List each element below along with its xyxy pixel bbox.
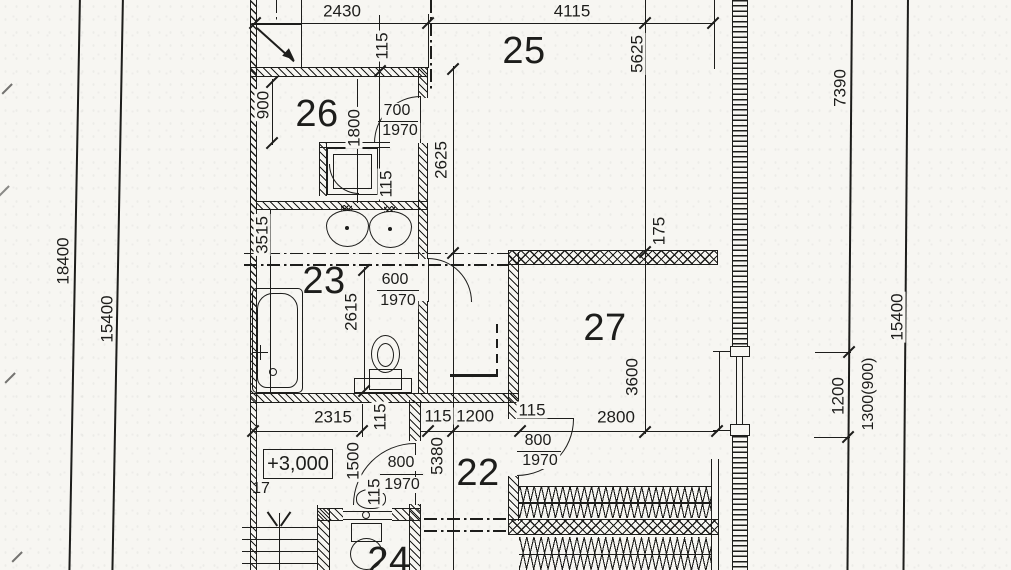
toilet-room23-bowl-inner	[377, 343, 394, 367]
wall-east-exterior-lower	[732, 436, 748, 570]
door-height-hall: 1970	[382, 477, 422, 493]
door-width-room26: 700	[382, 103, 413, 119]
dim-900: 900	[255, 89, 272, 121]
dim-chain-left	[253, 431, 358, 432]
floor-plan-sheet: 18400 15400 7390 15400 1200 1300(900) 24…	[0, 0, 1011, 570]
wall-hall-east-upper	[409, 400, 421, 441]
dim-1200-right: 1200	[830, 375, 847, 417]
stair-count: 17	[250, 481, 272, 497]
dim-4115: 4115	[552, 3, 593, 20]
dim-1300-900: 1300(900)	[861, 356, 877, 433]
dim-1500: 1500	[345, 440, 362, 482]
door-width-room27: 800	[523, 433, 554, 449]
room-label-22: 22	[454, 454, 501, 492]
edge-tick-4	[11, 551, 22, 562]
bathtub-drain	[269, 368, 277, 376]
door-height-room26: 1970	[380, 123, 420, 139]
dim-1800: 1800	[346, 107, 363, 149]
door-fraction-bar-room27	[517, 451, 561, 452]
dim-5625: 5625	[629, 33, 646, 75]
wall-room27-west-lower	[508, 476, 519, 521]
void-box-right-line	[301, 0, 302, 68]
shaft-mark-horizontal	[450, 374, 498, 377]
shaft-mark-vertical	[496, 324, 499, 374]
site-line-left-inner	[111, 0, 123, 570]
washbasin-1	[326, 210, 369, 247]
wardrobe-row1-rail	[519, 502, 712, 504]
dim-5380: 5380	[429, 435, 446, 477]
window-frame-top	[730, 346, 750, 357]
dim-2625: 2625	[433, 139, 450, 181]
door-width-hall: 800	[386, 455, 417, 471]
edge-tick-3	[4, 372, 15, 383]
dim-115-chain: 115	[422, 408, 453, 425]
dim-line-right-b	[902, 0, 908, 570]
dim-115-hall: 115	[366, 476, 383, 507]
washbasin-2	[369, 211, 412, 248]
washbasin-2-taps-icon	[384, 206, 395, 212]
wall-face-below-window-2	[718, 459, 719, 570]
dim-line-2625-5380	[453, 66, 454, 570]
dim-3515: 3515	[254, 214, 271, 256]
wall-east-exterior-upper	[732, 0, 748, 347]
wall-room27-west-upper	[508, 252, 519, 419]
axis-line-corridor-wall	[430, 0, 432, 92]
door-height-room23: 1970	[378, 293, 418, 309]
stair-arrow-head-left	[267, 511, 278, 526]
door-fraction-bar-room26	[378, 121, 418, 122]
dim-line-2615	[364, 267, 365, 393]
dim-2430: 2430	[321, 3, 363, 20]
axis-line-h1	[244, 253, 508, 255]
void-box-bottom-line	[252, 24, 301, 25]
wardrobe-row2-rail	[519, 554, 712, 556]
room24-slider-roller	[362, 511, 370, 519]
room-label-27: 27	[581, 309, 628, 347]
wall-wardrobe-middle	[508, 519, 719, 535]
room24-slider-rail-bottom	[343, 519, 392, 520]
dim-15400-right: 15400	[889, 291, 906, 342]
window-frame-bottom	[730, 424, 750, 436]
wall-corridor-seg-b	[418, 143, 428, 259]
dim-2315: 2315	[312, 409, 354, 426]
wall-room26-inner	[319, 142, 327, 196]
room-label-24: 24	[365, 542, 412, 570]
dim-2800: 2800	[595, 409, 637, 426]
dim-18400: 18400	[55, 235, 72, 286]
washbasin-1-taps-icon	[341, 205, 352, 211]
dim-ext-right-corner	[714, 0, 715, 69]
edge-tick-2	[0, 185, 10, 196]
wall-room24-west	[317, 508, 330, 570]
stair-arrow-head-right	[280, 511, 291, 526]
door-fraction-bar-room23	[377, 290, 419, 291]
dim-175: 175	[651, 215, 668, 247]
dim-115-shower: 115	[378, 168, 395, 199]
bathtub-inner	[257, 293, 298, 388]
door-height-room27: 1970	[520, 453, 560, 469]
dim-115-top: 115	[374, 30, 391, 61]
dim-2615: 2615	[343, 291, 360, 333]
wall-room25-south	[508, 250, 718, 265]
axis-line-bottom-2	[424, 530, 510, 532]
dim-1200-chain: 1200	[454, 408, 496, 425]
window-glazing-2	[742, 356, 743, 426]
axis-line-h2	[244, 264, 508, 266]
stair-arrow-stem	[279, 513, 281, 570]
bathtub-tap-v	[260, 345, 261, 360]
paper-noise-overlay	[0, 0, 1011, 570]
dim-115-wall: 115	[372, 401, 389, 432]
wall-corridor-seg-c	[418, 301, 428, 394]
axis-line-bottom-1	[424, 518, 510, 520]
door-width-room23: 600	[380, 272, 411, 288]
room-label-25: 25	[500, 32, 547, 70]
dim-3600: 3600	[624, 356, 641, 398]
door-fraction-bar-hall	[380, 474, 423, 475]
wall-corridor-seg-a	[418, 67, 428, 98]
window-sill-inner	[719, 352, 720, 431]
edge-tick-1	[1, 83, 12, 94]
room-label-26: 26	[293, 95, 340, 133]
void-axis-line	[276, 0, 278, 24]
dim-7390: 7390	[832, 67, 849, 109]
dim-15400-left: 15400	[99, 293, 116, 344]
level-marker-value: +3,000	[265, 454, 331, 474]
dim-115-room27: 115	[516, 402, 547, 419]
window-glazing-1	[736, 356, 737, 426]
